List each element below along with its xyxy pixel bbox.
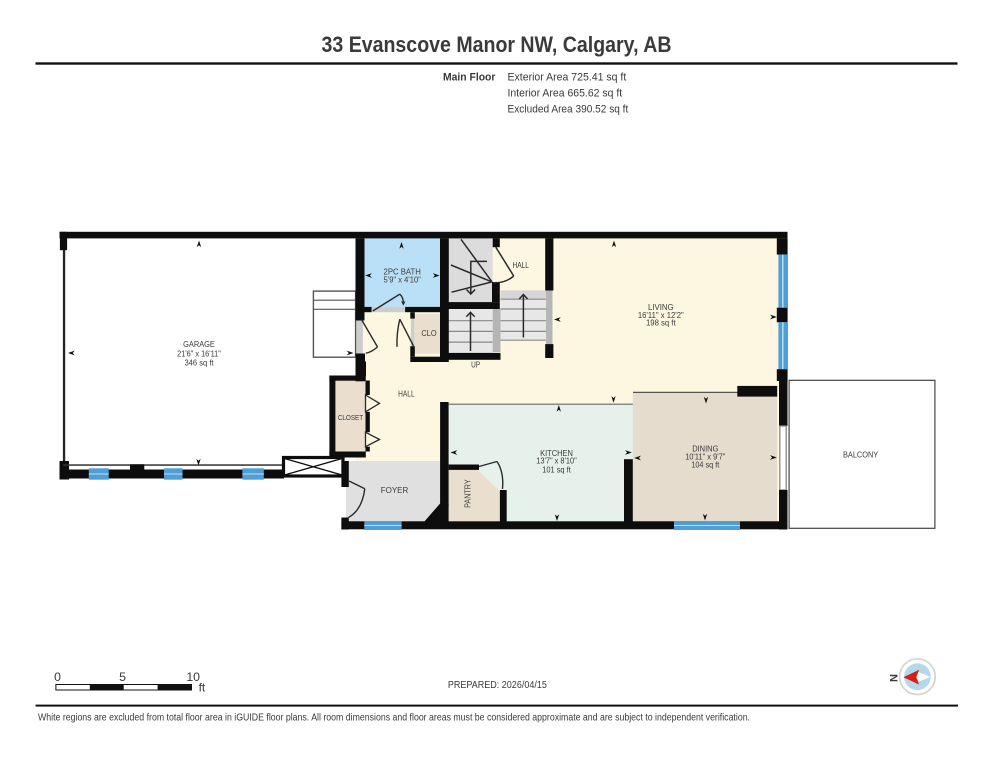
svg-text:0: 0 — [54, 670, 61, 684]
svg-text:33 Evanscove Manor NW, Calgary: 33 Evanscove Manor NW, Calgary, AB — [322, 32, 672, 57]
svg-text:ft: ft — [199, 680, 206, 694]
svg-text:Excluded Area 390.52 sq ft: Excluded Area 390.52 sq ft — [508, 104, 629, 116]
svg-text:13'7" x 8'10": 13'7" x 8'10" — [536, 457, 577, 466]
svg-text:PREPARED: 2026/04/15: PREPARED: 2026/04/15 — [448, 680, 547, 691]
svg-text:White regions are excluded fro: White regions are excluded from total fl… — [38, 713, 750, 724]
svg-text:346 sq ft: 346 sq ft — [184, 358, 214, 367]
svg-text:CLO: CLO — [421, 329, 436, 338]
svg-text:CLOSET: CLOSET — [338, 415, 364, 422]
svg-text:UP: UP — [471, 360, 480, 369]
svg-text:Interior Area 665.62 sq ft: Interior Area 665.62 sq ft — [508, 87, 623, 99]
svg-text:104 sq ft: 104 sq ft — [691, 460, 720, 469]
svg-text:101 sq ft: 101 sq ft — [542, 465, 571, 474]
svg-text:Main Floor: Main Floor — [443, 71, 496, 83]
svg-text:5: 5 — [119, 670, 126, 684]
svg-text:N: N — [888, 674, 900, 682]
svg-text:BALCONY: BALCONY — [843, 451, 879, 460]
svg-text:HALL: HALL — [398, 390, 415, 399]
svg-text:21'6" x 16'11": 21'6" x 16'11" — [177, 349, 221, 358]
svg-text:5'9" x 4'10": 5'9" x 4'10" — [384, 276, 421, 285]
svg-text:HALL: HALL — [512, 261, 529, 270]
svg-text:PANTRY: PANTRY — [464, 479, 473, 508]
svg-text:FOYER: FOYER — [381, 486, 409, 495]
svg-text:Exterior Area 725.41 sq ft: Exterior Area 725.41 sq ft — [508, 71, 627, 83]
svg-text:198 sq ft: 198 sq ft — [646, 319, 676, 328]
svg-text:GARAGE: GARAGE — [183, 340, 215, 349]
